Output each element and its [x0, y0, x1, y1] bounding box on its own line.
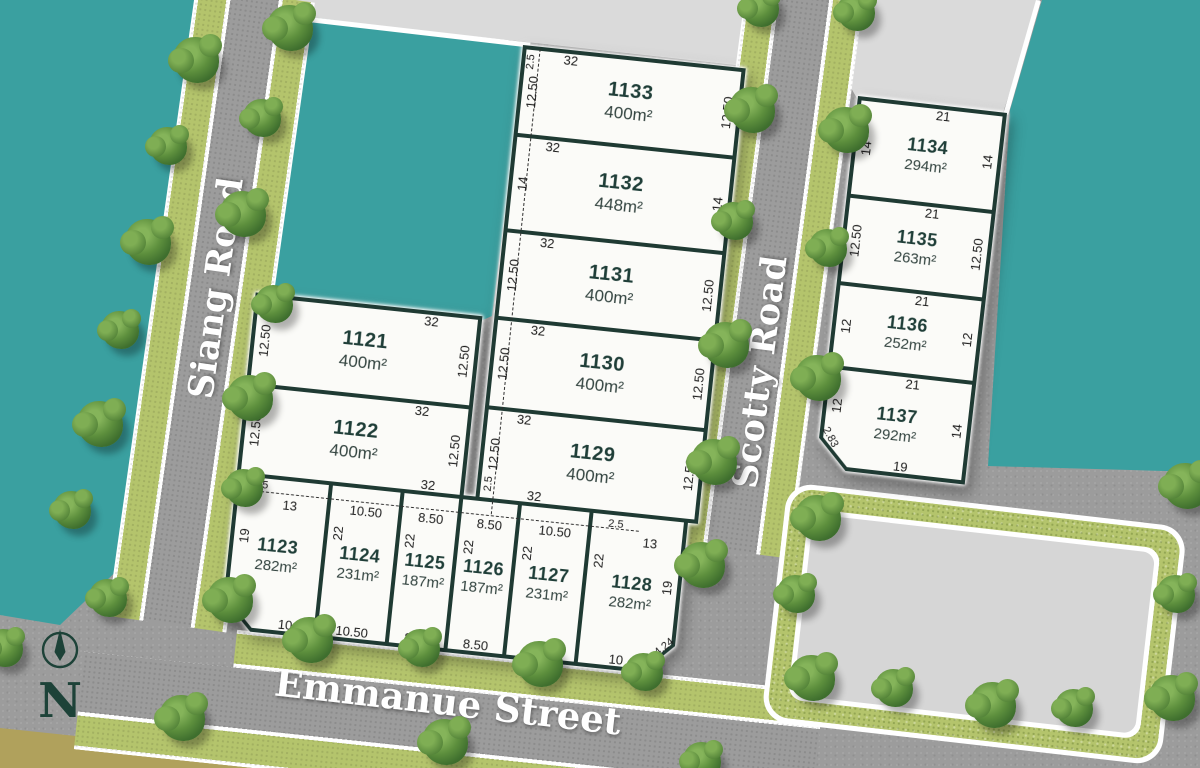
lot-area: 187m² [401, 571, 445, 592]
tree-icon [125, 219, 171, 265]
tree-icon [795, 355, 841, 401]
tree-icon [789, 655, 835, 701]
dim-top: 13 [642, 536, 658, 550]
tree-icon [1149, 675, 1195, 721]
lot-number: 1131 [588, 261, 636, 289]
tree-icon [1055, 689, 1093, 727]
dim-bottom: 32 [526, 489, 542, 503]
dim-left: 22 [331, 525, 345, 541]
lot-number: 1130 [578, 350, 626, 378]
lot-area: 400m² [575, 373, 625, 398]
tree-icon [422, 719, 468, 765]
dim-top: 32 [414, 404, 430, 418]
tree-icon [227, 375, 273, 421]
tree-icon [207, 577, 253, 623]
lot-area: 400m² [603, 102, 653, 127]
dim-right: 19 [660, 580, 674, 596]
dim-left: 12.50 [847, 224, 864, 258]
dim-top: 21 [905, 377, 921, 392]
dim-left: 12 [839, 318, 854, 334]
north-letter: N [30, 677, 90, 725]
tree-icon [703, 322, 749, 368]
tree-icon [287, 617, 333, 663]
lot-area: 187m² [460, 577, 504, 598]
tree-icon [683, 742, 721, 768]
tree-icon [220, 191, 266, 237]
dim-left: 12 [830, 397, 845, 413]
tree-icon [679, 542, 725, 588]
lot-area: 231m² [336, 564, 380, 585]
dim-right: 12.50 [969, 238, 986, 272]
lot-number: 1127 [527, 562, 570, 587]
tree-icon [225, 469, 263, 507]
tree-icon [255, 285, 293, 323]
dim-bottom: 10.50 [335, 624, 369, 640]
dim-right: 14 [949, 423, 964, 439]
dim-top: 32 [424, 314, 440, 328]
lot-number: 1125 [403, 549, 446, 574]
dim-left: 22 [591, 552, 605, 568]
dim-left: 22 [402, 533, 416, 549]
tree-icon [101, 311, 139, 349]
tree-icon [729, 87, 775, 133]
dim-right: 12.50 [455, 345, 471, 379]
tree-icon [875, 669, 913, 707]
tree-icon [402, 629, 440, 667]
dim-top: 8.50 [476, 517, 503, 533]
dim-bottom: 8.50 [462, 637, 489, 653]
dim-left: 22 [461, 539, 475, 555]
lot-number: 1128 [610, 571, 653, 596]
tree-icon [1157, 575, 1195, 613]
dim-bottom: 32 [420, 478, 436, 492]
lot-1136[interactable]: 1136252m² 21 12 12 [827, 281, 986, 385]
tree-icon [691, 439, 737, 485]
lot-area: 400m² [565, 464, 615, 489]
lot-area: 400m² [338, 351, 388, 376]
dim-top: 21 [935, 109, 951, 124]
tree-icon [77, 401, 123, 447]
dim-bottom: 10 [608, 652, 624, 666]
north-indicator: N [30, 626, 90, 725]
dim-right: 12.50 [446, 434, 462, 468]
lot-number: 1129 [569, 440, 617, 468]
tree-icon [795, 495, 841, 541]
dim-left: 12.50 [257, 324, 273, 358]
tree-icon [53, 491, 91, 529]
dim-top: 32 [539, 236, 555, 250]
lot-area: 448m² [594, 193, 644, 218]
tree-icon [625, 653, 663, 691]
lot-number: 1124 [338, 542, 381, 567]
lot-number: 1133 [607, 78, 655, 106]
lot-area: 252m² [883, 333, 927, 355]
tree-icon [715, 202, 753, 240]
dim-right: 12 [960, 332, 975, 348]
dim-left: 22 [520, 545, 534, 561]
lot-number: 1122 [332, 416, 380, 444]
dim-top: 10.50 [538, 523, 572, 539]
lot-number: 1132 [597, 170, 645, 198]
dim-bottom: 19 [892, 459, 908, 474]
lot-area: 282m² [608, 593, 652, 614]
tree-icon [243, 99, 281, 137]
dim-top: 21 [924, 206, 940, 221]
dim-left: 12.50 [486, 437, 502, 471]
tree-icon [777, 575, 815, 613]
dim-top: 13 [282, 498, 298, 512]
lot-number: 1123 [256, 534, 299, 559]
dim-offset: 2.5 [483, 476, 496, 492]
tree-icon [267, 5, 313, 51]
tree-icon [89, 579, 127, 617]
dim-left: 12.50 [495, 347, 511, 381]
lot-number: 1121 [341, 327, 389, 355]
dim-top: 32 [516, 412, 532, 426]
dim-left: 19 [237, 528, 251, 544]
dim-left: 12.50 [524, 75, 540, 109]
dim-left: 12.50 [505, 258, 521, 292]
lot-number: 1126 [462, 555, 505, 580]
lot-area: 263m² [893, 248, 937, 270]
dim-top: 32 [563, 53, 579, 67]
tree-icon [1163, 463, 1200, 509]
tree-icon [173, 37, 219, 83]
tree-icon [159, 695, 205, 741]
lot-area: 292m² [873, 424, 917, 446]
lot-area: 400m² [584, 285, 634, 310]
dim-top: 10.50 [349, 503, 383, 519]
dim-top: 8.50 [417, 511, 444, 527]
dim-left: 14 [515, 176, 529, 192]
tree-icon [823, 107, 869, 153]
subdivision-map: 1133400m² 32 12.50 12.50 2.5 1132448m² 3… [0, 0, 1200, 768]
lot-area: 282m² [254, 555, 298, 576]
tree-icon [809, 229, 847, 267]
dim-right: 12.50 [700, 279, 716, 313]
dim-right: 12.50 [690, 367, 706, 401]
lot-area: 231m² [525, 584, 569, 605]
lot-area: 400m² [328, 440, 378, 465]
dim-right: 14 [980, 154, 995, 170]
dim-top: 21 [914, 294, 930, 309]
compass-icon [37, 626, 83, 672]
tree-icon [149, 127, 187, 165]
tree-icon [517, 641, 563, 687]
dim-top: 32 [545, 140, 561, 154]
tree-icon [970, 682, 1016, 728]
dim-offset: 2.5 [525, 54, 538, 70]
lot-area: 294m² [903, 155, 947, 177]
dim-top: 32 [530, 323, 546, 337]
tree-icon [0, 629, 23, 667]
